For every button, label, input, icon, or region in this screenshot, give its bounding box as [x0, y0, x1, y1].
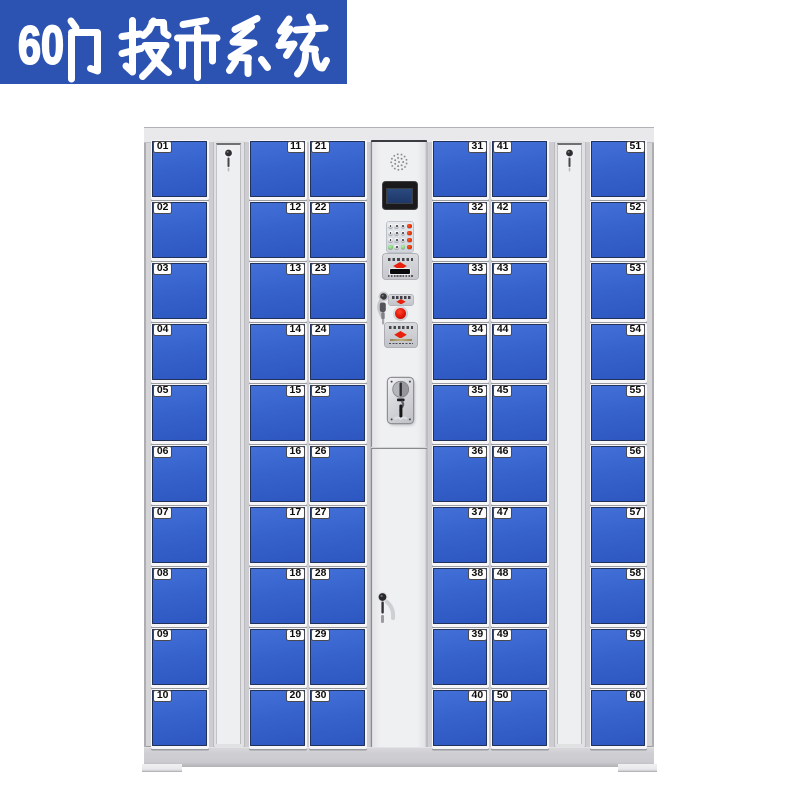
svg-text:60: 60 [18, 16, 64, 76]
